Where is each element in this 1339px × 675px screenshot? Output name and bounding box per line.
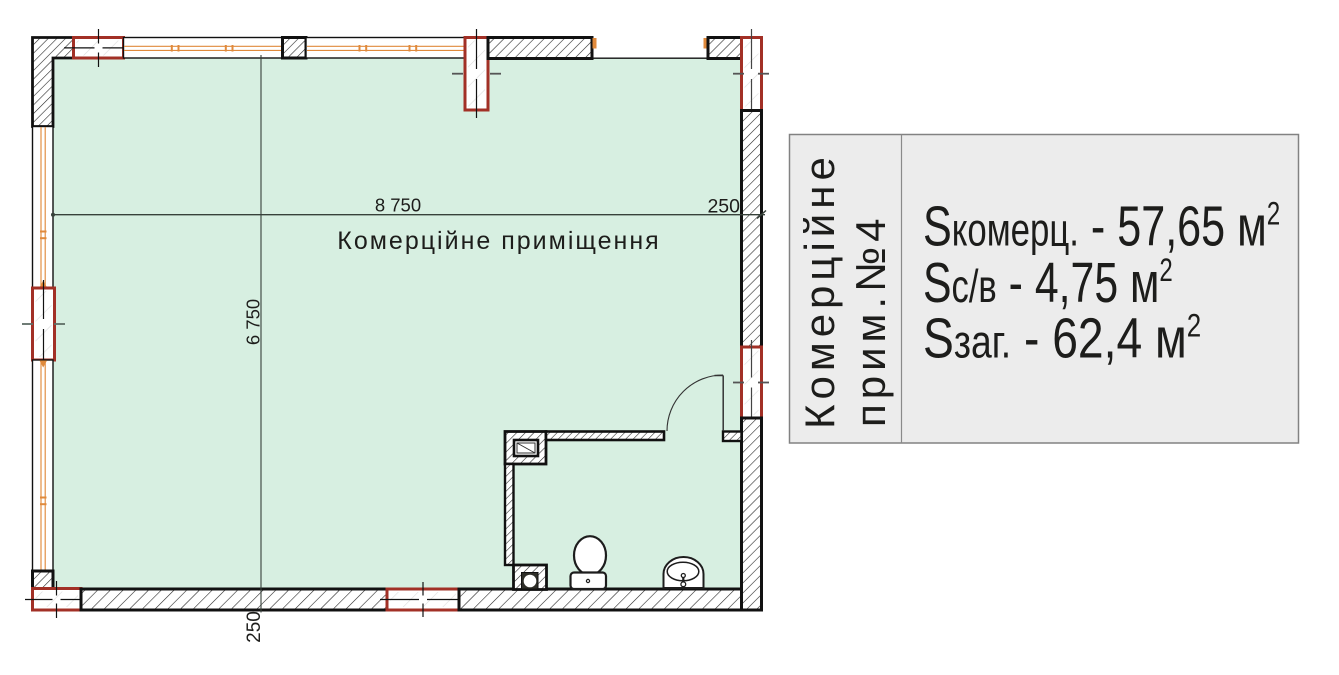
- svg-text:6 750: 6 750: [243, 299, 264, 345]
- svg-text:Sкомерц. - 57,65 м2: Sкомерц. - 57,65 м2: [923, 194, 1280, 258]
- svg-text:250: 250: [244, 611, 265, 643]
- svg-text:прим.№4: прим.№4: [847, 213, 894, 427]
- svg-text:Sс/в - 4,75 м2: Sс/в - 4,75 м2: [923, 250, 1173, 314]
- svg-text:Sзаг. - 62,4 м2: Sзаг. - 62,4 м2: [923, 306, 1201, 370]
- svg-text:Комерційне приміщення: Комерційне приміщення: [337, 227, 660, 255]
- svg-text:8 750: 8 750: [375, 194, 421, 215]
- svg-text:Комерційне: Комерційне: [796, 152, 843, 429]
- svg-text:250: 250: [707, 196, 740, 218]
